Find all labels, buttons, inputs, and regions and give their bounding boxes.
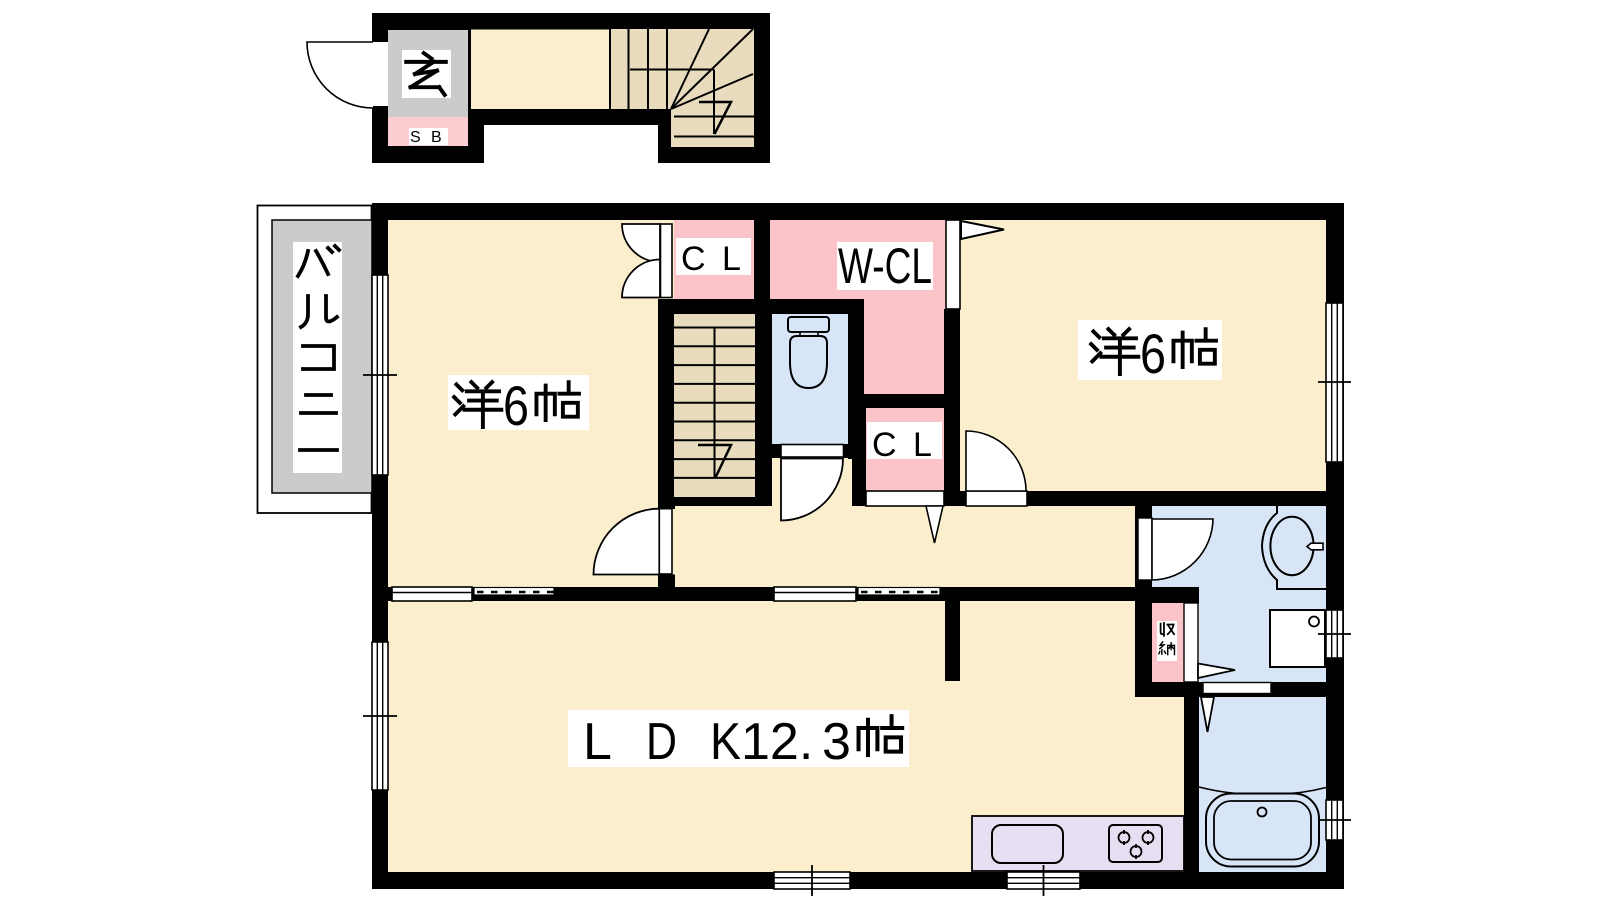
svg-text:D: D [646,713,677,771]
svg-text:3: 3 [822,713,851,771]
svg-text:L: L [583,713,612,771]
svg-text:6: 6 [503,374,529,437]
svg-text:W-CL: W-CL [838,238,932,294]
svg-text:L: L [722,240,741,278]
svg-text:12.: 12. [741,713,813,771]
svg-text:C: C [872,426,897,464]
svg-text:S: S [410,129,421,146]
svg-text:6: 6 [1140,322,1166,385]
svg-text:K: K [710,713,741,771]
svg-text:L: L [913,426,932,464]
svg-text:B: B [431,129,442,146]
svg-text:C: C [681,240,706,278]
